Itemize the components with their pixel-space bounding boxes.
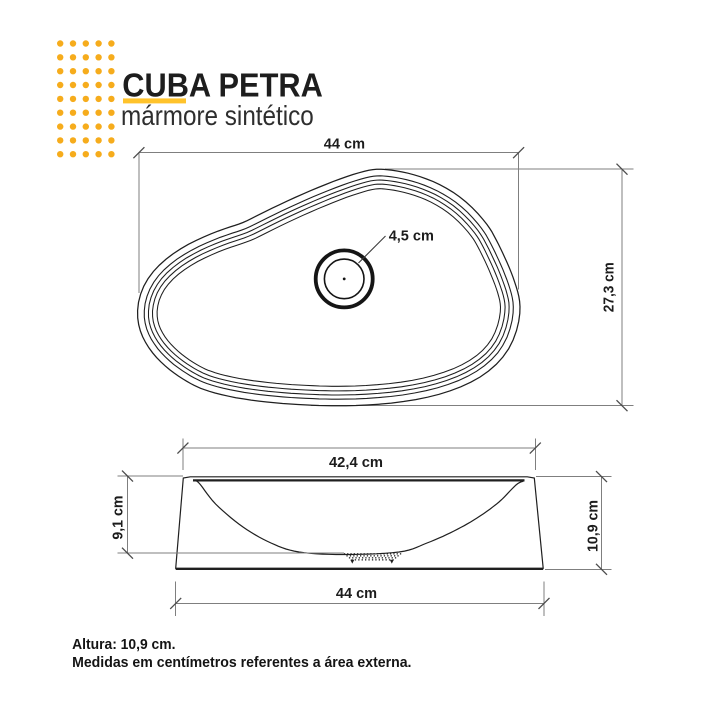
svg-text:44 cm: 44 cm	[324, 137, 365, 153]
svg-text:Medidas em centímetros referen: Medidas em centímetros referentes a área…	[72, 655, 411, 671]
svg-text:Altura: 10,9 cm.: Altura: 10,9 cm.	[72, 637, 175, 653]
svg-text:10,9 cm: 10,9 cm	[585, 500, 601, 552]
svg-text:9,1 cm: 9,1 cm	[111, 496, 127, 540]
svg-text:mármore sintético: mármore sintético	[121, 100, 314, 131]
svg-text:42,4 cm: 42,4 cm	[329, 455, 383, 471]
svg-text:27,3 cm: 27,3 cm	[602, 262, 618, 312]
svg-text:44 cm: 44 cm	[336, 586, 377, 602]
svg-text:CUBA PETRA: CUBA PETRA	[122, 67, 322, 104]
svg-text:4,5 cm: 4,5 cm	[389, 229, 434, 245]
